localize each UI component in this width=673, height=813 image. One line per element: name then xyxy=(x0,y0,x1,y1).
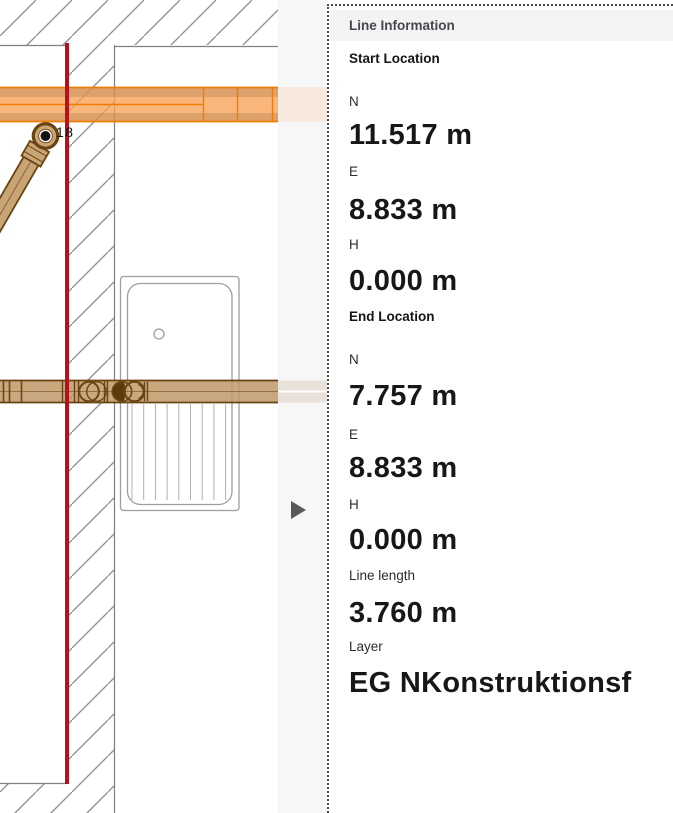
wall-hatch-top xyxy=(0,0,327,47)
line-information-panel: Line Information Start Location N 11.517… xyxy=(327,4,673,813)
wall-hatch-bottom xyxy=(0,783,66,813)
panel-title: Line Information xyxy=(349,10,455,41)
cad-viewport[interactable]: 18 xyxy=(0,0,327,813)
ventilation-duct[interactable] xyxy=(0,87,327,122)
start-location-section-label: Start Location xyxy=(349,51,440,66)
wall-hatch-column xyxy=(66,45,115,813)
start-e-value: 8.833 m xyxy=(349,196,661,220)
end-location-section-label: End Location xyxy=(349,309,435,324)
layer-label: Layer xyxy=(349,639,383,654)
end-e-value: 8.833 m xyxy=(349,454,661,478)
duct-faded-continuation xyxy=(278,87,327,122)
end-n-value: 7.757 m xyxy=(349,382,661,406)
pipe-endpoint-label: 18 xyxy=(56,124,75,140)
end-h-value: 0.000 m xyxy=(349,526,661,550)
panel-header: Line Information xyxy=(329,10,673,41)
end-e-label: E xyxy=(349,427,358,442)
end-h-label: H xyxy=(349,497,359,512)
start-h-value: 0.000 m xyxy=(349,267,661,291)
start-h-label: H xyxy=(349,237,359,252)
line-length-label: Line length xyxy=(349,568,415,583)
line-length-value: 3.760 m xyxy=(349,599,661,623)
start-n-label: N xyxy=(349,94,359,109)
start-n-value: 11.517 m xyxy=(349,121,661,145)
start-e-label: E xyxy=(349,164,358,179)
horizontal-pipe[interactable] xyxy=(0,381,327,403)
section-cut-line[interactable] xyxy=(65,43,69,784)
diagonal-pipe[interactable] xyxy=(0,119,62,235)
end-n-label: N xyxy=(349,352,359,367)
layer-value: EG NKonstruktionsf xyxy=(349,669,661,693)
